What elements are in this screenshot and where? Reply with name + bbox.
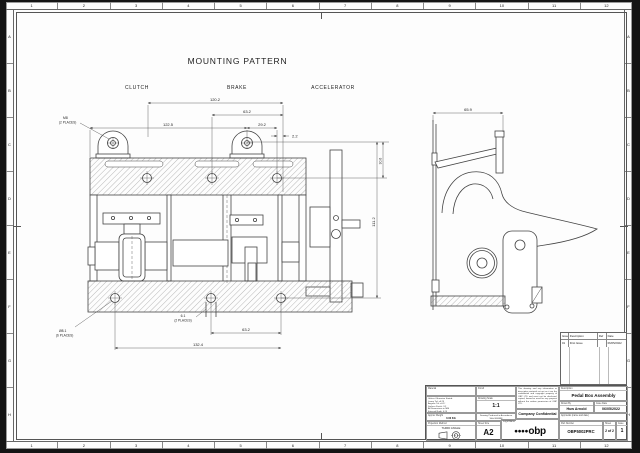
part-number-value: OBP5002PRC xyxy=(560,429,602,434)
rev-description: First Issue xyxy=(569,340,598,347)
ruler-col: 3 xyxy=(111,2,163,9)
rev-issue: 01 xyxy=(561,340,569,347)
rev-header-issue: Issue xyxy=(561,333,569,339)
side-view-body xyxy=(431,120,597,313)
rev-header-date: Date xyxy=(607,333,626,339)
finish-label: Finish xyxy=(477,387,515,390)
projection-value: THIRD ANGLE xyxy=(427,426,475,430)
ruler-row: C xyxy=(6,118,13,172)
ruler-row: G xyxy=(6,334,13,388)
side-view-dimensions xyxy=(433,113,503,132)
rev-header-ref: Ref xyxy=(598,333,607,339)
ruler-col: 5 xyxy=(215,442,267,449)
ruler-col: 7 xyxy=(320,2,372,9)
revision-table: Issue Description Ref Date 01 First Issu… xyxy=(560,332,627,385)
svg-text:(2 PLACES): (2 PLACES) xyxy=(59,121,76,125)
ruler-col: 9 xyxy=(424,2,476,9)
scale-cell: Drawing Scale 1:1 xyxy=(476,396,516,413)
drawing-title: MOUNTING PATTERN xyxy=(180,56,295,66)
ruler-col: 6 xyxy=(267,2,319,9)
revision-table-header: Issue Description Ref Date xyxy=(561,333,626,340)
issue-date-label: Issue Date xyxy=(595,402,627,406)
obp-logo: ●●●● obp xyxy=(502,423,558,439)
finish-cell: Finish xyxy=(476,386,516,396)
ruler-col: 1 xyxy=(6,2,58,9)
front-view: 120.2 63.2 122.5 29.2 2.2 111.2 30.6 63.… xyxy=(55,95,400,365)
ruler-top: 1 2 3 4 5 6 7 8 9 10 11 12 xyxy=(6,2,632,10)
ruler-row: E xyxy=(6,226,13,280)
rev-date: 06/05/2022 xyxy=(607,340,626,347)
svg-text:63.2: 63.2 xyxy=(243,109,252,114)
sheet-size-value: A2 xyxy=(477,428,500,437)
ruler-col: 11 xyxy=(529,442,581,449)
tolerance-note: Unless Otherwise Stated: Linear Tol: ±0.… xyxy=(427,397,475,413)
svg-text:63.2: 63.2 xyxy=(242,327,251,332)
description-value: Pedal Box Assembly xyxy=(560,393,627,398)
rev-divider xyxy=(608,347,609,384)
svg-text:2.2: 2.2 xyxy=(292,134,298,139)
title-block: Material Finish Unless Otherwise Stated:… xyxy=(425,385,627,440)
confidential-cell: Company Confidential xyxy=(516,409,559,419)
svg-text:6.1: 6.1 xyxy=(181,314,186,318)
side-view: 65.9 xyxy=(415,98,610,328)
rev-ref xyxy=(598,340,607,347)
issue-value: 1 xyxy=(617,428,627,434)
issue-date-cell: Issue Date 06/05/2022 xyxy=(594,401,628,413)
ruler-col: 3 xyxy=(111,442,163,449)
scale-value: 1:1 xyxy=(477,403,515,409)
ruler-row: B xyxy=(6,64,13,118)
ruler-row: H xyxy=(6,388,13,441)
ruler-col: 2 xyxy=(58,2,110,9)
ruler-col: 6 xyxy=(267,442,319,449)
label-clutch: CLUTCH xyxy=(112,85,162,91)
weight-cell: Approx Weight 0.00 KG xyxy=(426,413,476,421)
sheet-cell: Sheet 2 of 2 xyxy=(603,421,616,441)
svg-text:Ø8.1: Ø8.1 xyxy=(59,329,66,333)
ruler-col: 4 xyxy=(163,442,215,449)
projection-cell: Projection Method THIRD ANGLE xyxy=(426,421,476,441)
ruler-col: 5 xyxy=(215,2,267,9)
rev-divider xyxy=(569,347,570,384)
ruler-row: F xyxy=(6,280,13,334)
centre-tick-left xyxy=(13,226,21,227)
sheet-value: 2 of 2 xyxy=(604,429,615,433)
legal-cell: This drawing and any information or desc… xyxy=(516,386,559,409)
sheet-size-cell: Sheet Size A2 xyxy=(476,421,501,441)
svg-text:111.2: 111.2 xyxy=(371,217,376,227)
ruler-col: 8 xyxy=(372,2,424,9)
ruler-bottom: 1 2 3 4 5 6 7 8 9 10 11 12 xyxy=(6,441,632,449)
ruler-row: A xyxy=(6,10,13,64)
ruler-col: 7 xyxy=(320,442,372,449)
sheet-label: Sheet xyxy=(604,422,615,426)
centre-tick-right xyxy=(620,226,628,227)
approvals-cell: Approvals (name and date) xyxy=(559,413,628,421)
issue-label: Issue xyxy=(617,422,627,426)
issue-cell: Issue 1 xyxy=(616,421,628,441)
weight-value: 0.00 KG xyxy=(427,417,475,420)
ruler-col: 1 xyxy=(6,442,58,449)
front-view-body xyxy=(88,131,363,317)
drawn-by-cell: Drawn By Huw Arnold xyxy=(559,401,594,413)
svg-text:122.5: 122.5 xyxy=(163,122,174,127)
approvals-label: Approvals (name and date) xyxy=(560,414,627,417)
scale-label: Drawing Scale xyxy=(477,397,515,401)
ruler-col: 12 xyxy=(581,442,632,449)
svg-text:M8: M8 xyxy=(63,116,68,120)
confidential-note: This drawing and any information or desc… xyxy=(517,387,558,407)
obp-logo-dots-icon: ●●●● xyxy=(514,428,528,435)
ruler-col: 10 xyxy=(476,442,528,449)
sheet-size-label: Sheet Size xyxy=(477,422,500,426)
drawing-sheet-page: { "border_ruler": { "columns": ["1","2",… xyxy=(0,0,640,453)
drawn-by-value: Huw Arnold xyxy=(560,407,593,411)
label-accelerator: ACCELERATOR xyxy=(302,85,364,91)
ruler-col: 12 xyxy=(581,2,632,9)
side-view-dim-text: 65.9 xyxy=(464,107,473,112)
svg-text:(2 PLACES): (2 PLACES) xyxy=(174,319,191,323)
issue-date-value: 06/05/2022 xyxy=(595,407,627,411)
svg-text:30.6: 30.6 xyxy=(379,158,383,165)
part-number-cell: Part Number OBP5002PRC xyxy=(559,421,603,441)
svg-text:65.9: 65.9 xyxy=(464,107,473,112)
description-label: Description xyxy=(560,387,627,391)
drawn-by-label: Drawn By xyxy=(560,402,593,406)
svg-text:29.2: 29.2 xyxy=(258,122,267,127)
ruler-col: 9 xyxy=(424,442,476,449)
part-number-label: Part Number xyxy=(560,422,602,426)
description-cell: Description Pedal Box Assembly xyxy=(559,386,628,401)
svg-text:(6 PLACES): (6 PLACES) xyxy=(56,334,73,338)
ruler-col: 4 xyxy=(163,2,215,9)
svg-text:132.4: 132.4 xyxy=(193,342,204,347)
centre-tick-bottom xyxy=(321,433,322,439)
ruler-col: 10 xyxy=(476,2,528,9)
label-brake: BRAKE xyxy=(212,85,262,91)
ruler-col: 11 xyxy=(529,2,581,9)
tolerance-cell: Unless Otherwise Stated: Linear Tol: ±0.… xyxy=(426,396,476,413)
obp-logo-text: obp xyxy=(528,426,545,437)
material-label: Material xyxy=(427,387,475,390)
company-confidential: Company Confidential xyxy=(517,410,558,419)
rev-header-description: Description xyxy=(569,333,598,339)
rev-divider xyxy=(599,347,600,384)
material-cell: Material xyxy=(426,386,476,396)
centre-tick-top xyxy=(321,13,322,19)
third-angle-symbol xyxy=(438,431,464,440)
ruler-row: D xyxy=(6,172,13,226)
svg-text:120.2: 120.2 xyxy=(210,97,221,102)
ruler-col: 8 xyxy=(372,442,424,449)
revision-row: 01 First Issue 06/05/2022 xyxy=(561,340,626,347)
logo-cell: Logo/Name ●●●● obp xyxy=(501,419,559,441)
ruler-col: 2 xyxy=(58,442,110,449)
